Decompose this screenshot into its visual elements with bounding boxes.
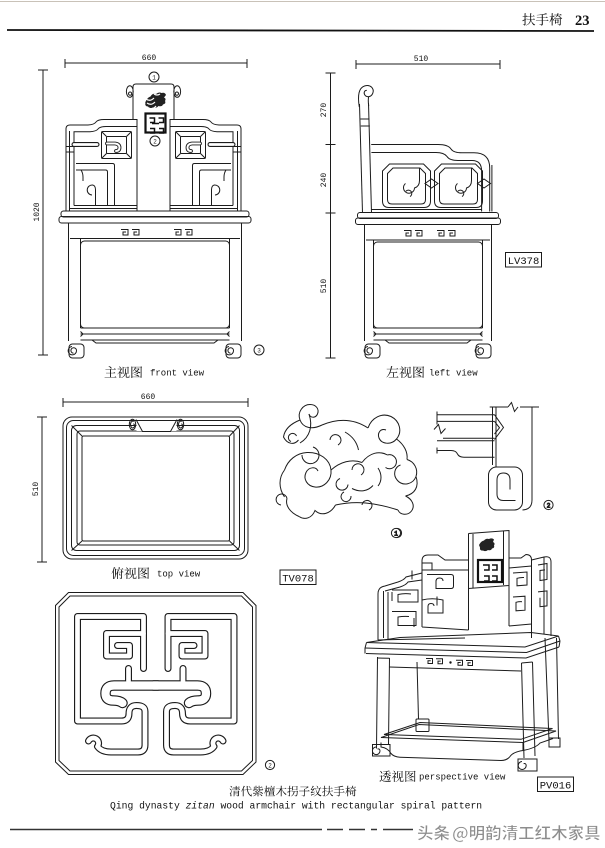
svg-text:660: 660 [141, 393, 156, 402]
svg-text:510: 510 [414, 55, 429, 64]
svg-text:top view: top view [157, 570, 201, 580]
svg-text:Qing dynasty zitan wood armch: Qing dynasty zitan wood armchair with re… [110, 801, 482, 812]
svg-text:front view: front view [150, 369, 205, 379]
svg-text:LV378: LV378 [508, 256, 540, 268]
svg-text:2: 2 [153, 138, 157, 145]
svg-text:TV078: TV078 [282, 574, 314, 586]
svg-text:660: 660 [142, 54, 157, 63]
svg-text:240: 240 [320, 173, 329, 188]
svg-text:510: 510 [320, 279, 329, 294]
svg-text:2: 2 [547, 502, 551, 509]
svg-text:2: 2 [268, 762, 272, 769]
svg-text:left view: left view [429, 369, 478, 379]
svg-text:1020: 1020 [33, 202, 42, 221]
svg-text:510: 510 [32, 482, 41, 497]
svg-text:1: 1 [152, 74, 156, 81]
svg-text:perspective view: perspective view [419, 773, 506, 783]
svg-text:PV016: PV016 [540, 781, 572, 793]
svg-text:3: 3 [257, 347, 261, 354]
svg-text:270: 270 [320, 103, 329, 118]
svg-text:23: 23 [575, 13, 590, 29]
svg-text:1: 1 [394, 530, 398, 537]
